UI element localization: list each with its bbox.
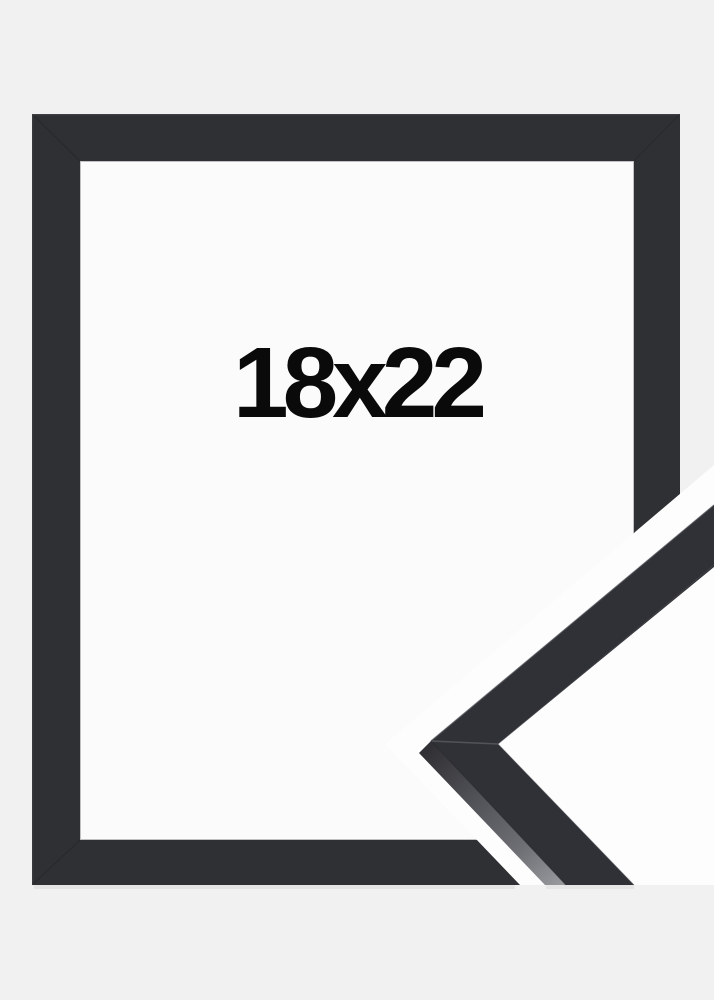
frame-shadow [34, 885, 515, 889]
frame-size-label: 18x22 [233, 327, 483, 439]
sample-shadow [546, 885, 634, 889]
frame-product-illustration: 18x22 [0, 0, 714, 1000]
product-photo: 18x22 [0, 0, 714, 1000]
